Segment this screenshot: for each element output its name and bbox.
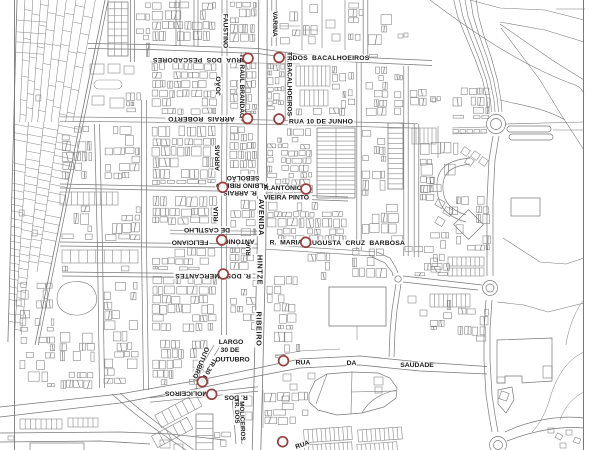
svg-text:OUTUBRO: OUTUBRO: [215, 357, 249, 364]
svg-text:R.ANTÓNIO: R.ANTÓNIO: [264, 183, 302, 192]
svg-text:RUA: RUA: [246, 242, 253, 256]
svg-text:RUA DOS PESCADORES: RUA DOS PESCADORES: [152, 56, 241, 63]
svg-text:R. MARIA: R. MARIA: [270, 240, 303, 247]
svg-text:VARINA: VARINA: [271, 11, 278, 37]
svg-text:RUA 10 DE JUNHO: RUA 10 DE JUNHO: [289, 119, 353, 126]
svg-text:TR.BACALHOEIROS: TR.BACALHOEIROS: [286, 52, 293, 117]
svg-text:DE CASTILHO: DE CASTILHO: [184, 226, 230, 233]
svg-text:HINTZE: HINTZE: [256, 255, 265, 285]
svg-text:R. DOS MERCANTES: R. DOS MERCANTES: [175, 272, 251, 279]
svg-text:DA: DA: [347, 360, 357, 367]
svg-text:FELICIANO: FELICIANO: [172, 239, 209, 246]
svg-text:AUGUSTA CRUZ BARBOSA: AUGUSTA CRUZ BARBOSA: [307, 240, 405, 247]
svg-text:FAUSTINO: FAUSTINO: [222, 14, 229, 48]
svg-text:VIEIRA PINTO: VIEIRA PINTO: [264, 195, 309, 202]
svg-text:ARRAIS: ARRAIS: [214, 145, 221, 172]
svg-text:R. ARRAIS: R. ARRAIS: [223, 189, 257, 196]
svg-text:R. ARRAIS ROBERTO: R. ARRAIS ROBERTO: [168, 115, 246, 122]
svg-text:DOS BACALHOEIROS: DOS BACALHOEIROS: [292, 55, 369, 62]
svg-text:JOÃO: JOÃO: [214, 76, 223, 95]
svg-text:RIBEIRO: RIBEIRO: [255, 312, 264, 347]
svg-text:MOLICEIROS: MOLICEIROS: [165, 390, 209, 397]
svg-text:RUA: RUA: [213, 207, 220, 222]
svg-text:RUA: RUA: [296, 360, 311, 367]
svg-text:AVENIDA: AVENIDA: [257, 199, 266, 236]
svg-text:MOLICEIROS: MOLICEIROS: [238, 401, 246, 440]
svg-text:LARGO: LARGO: [219, 339, 244, 346]
svg-text:SAUDADE: SAUDADE: [400, 362, 434, 369]
svg-text:30 DE: 30 DE: [221, 347, 240, 354]
